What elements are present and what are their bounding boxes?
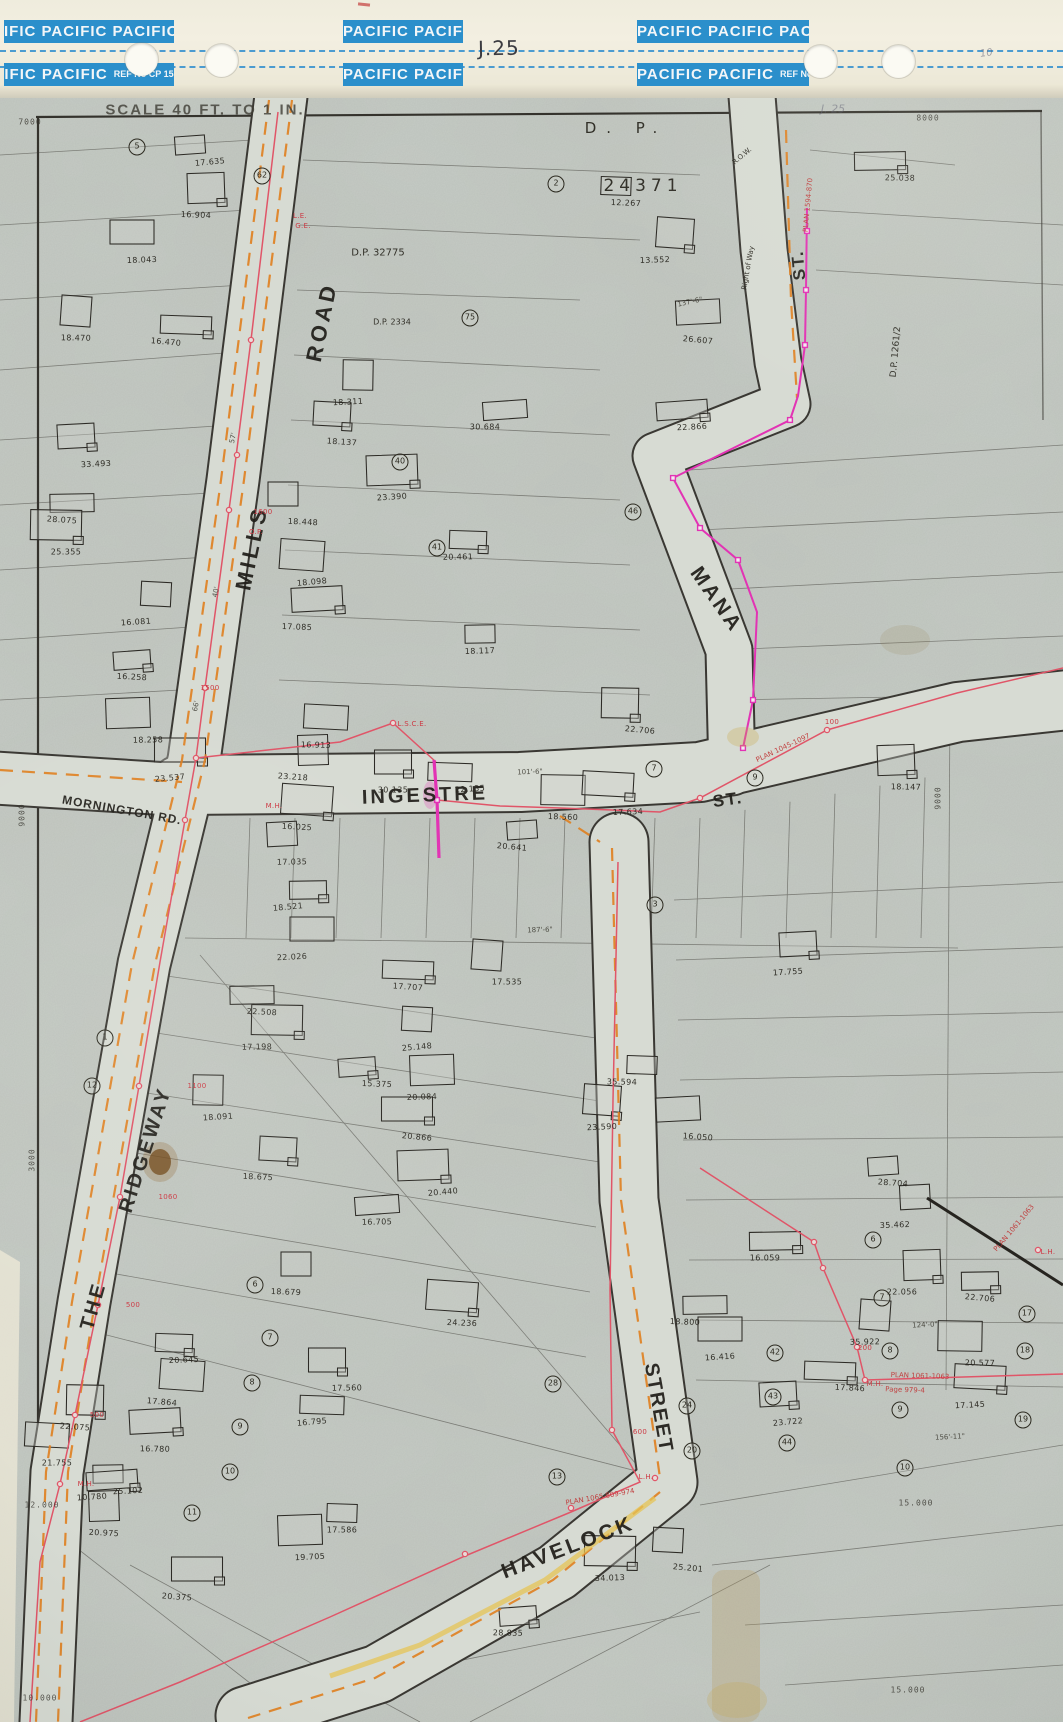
map-canvas [0,0,1063,1722]
scanned-survey-map-sheet: SCALE 40 FT. TO 1 IN.J. 25MILLSROADMANAS… [0,0,1063,1722]
pacific-band-ref: PACIFIC PACIFICREF No CP 15 [637,63,809,86]
punch-hole [125,43,158,76]
red-mark [358,2,370,6]
punch-hole [804,45,837,78]
pencil-note: 10 [979,47,993,60]
pacific-band: PACIFIC PACIFIC [343,63,463,86]
pacific-band: PACIFIC PACIFIC [343,20,463,43]
pacific-band: PACIFIC PACIFIC PACIFIC [637,20,809,43]
pacific-band: IFIC PACIFIC PACIFIC [4,20,174,43]
binder-strip: IFIC PACIFIC PACIFIC PACIFIC PACIFIC PAC… [0,0,1063,98]
punch-hole [205,44,238,77]
punch-hole [882,45,915,78]
sheet-number: J.25 [478,36,520,61]
